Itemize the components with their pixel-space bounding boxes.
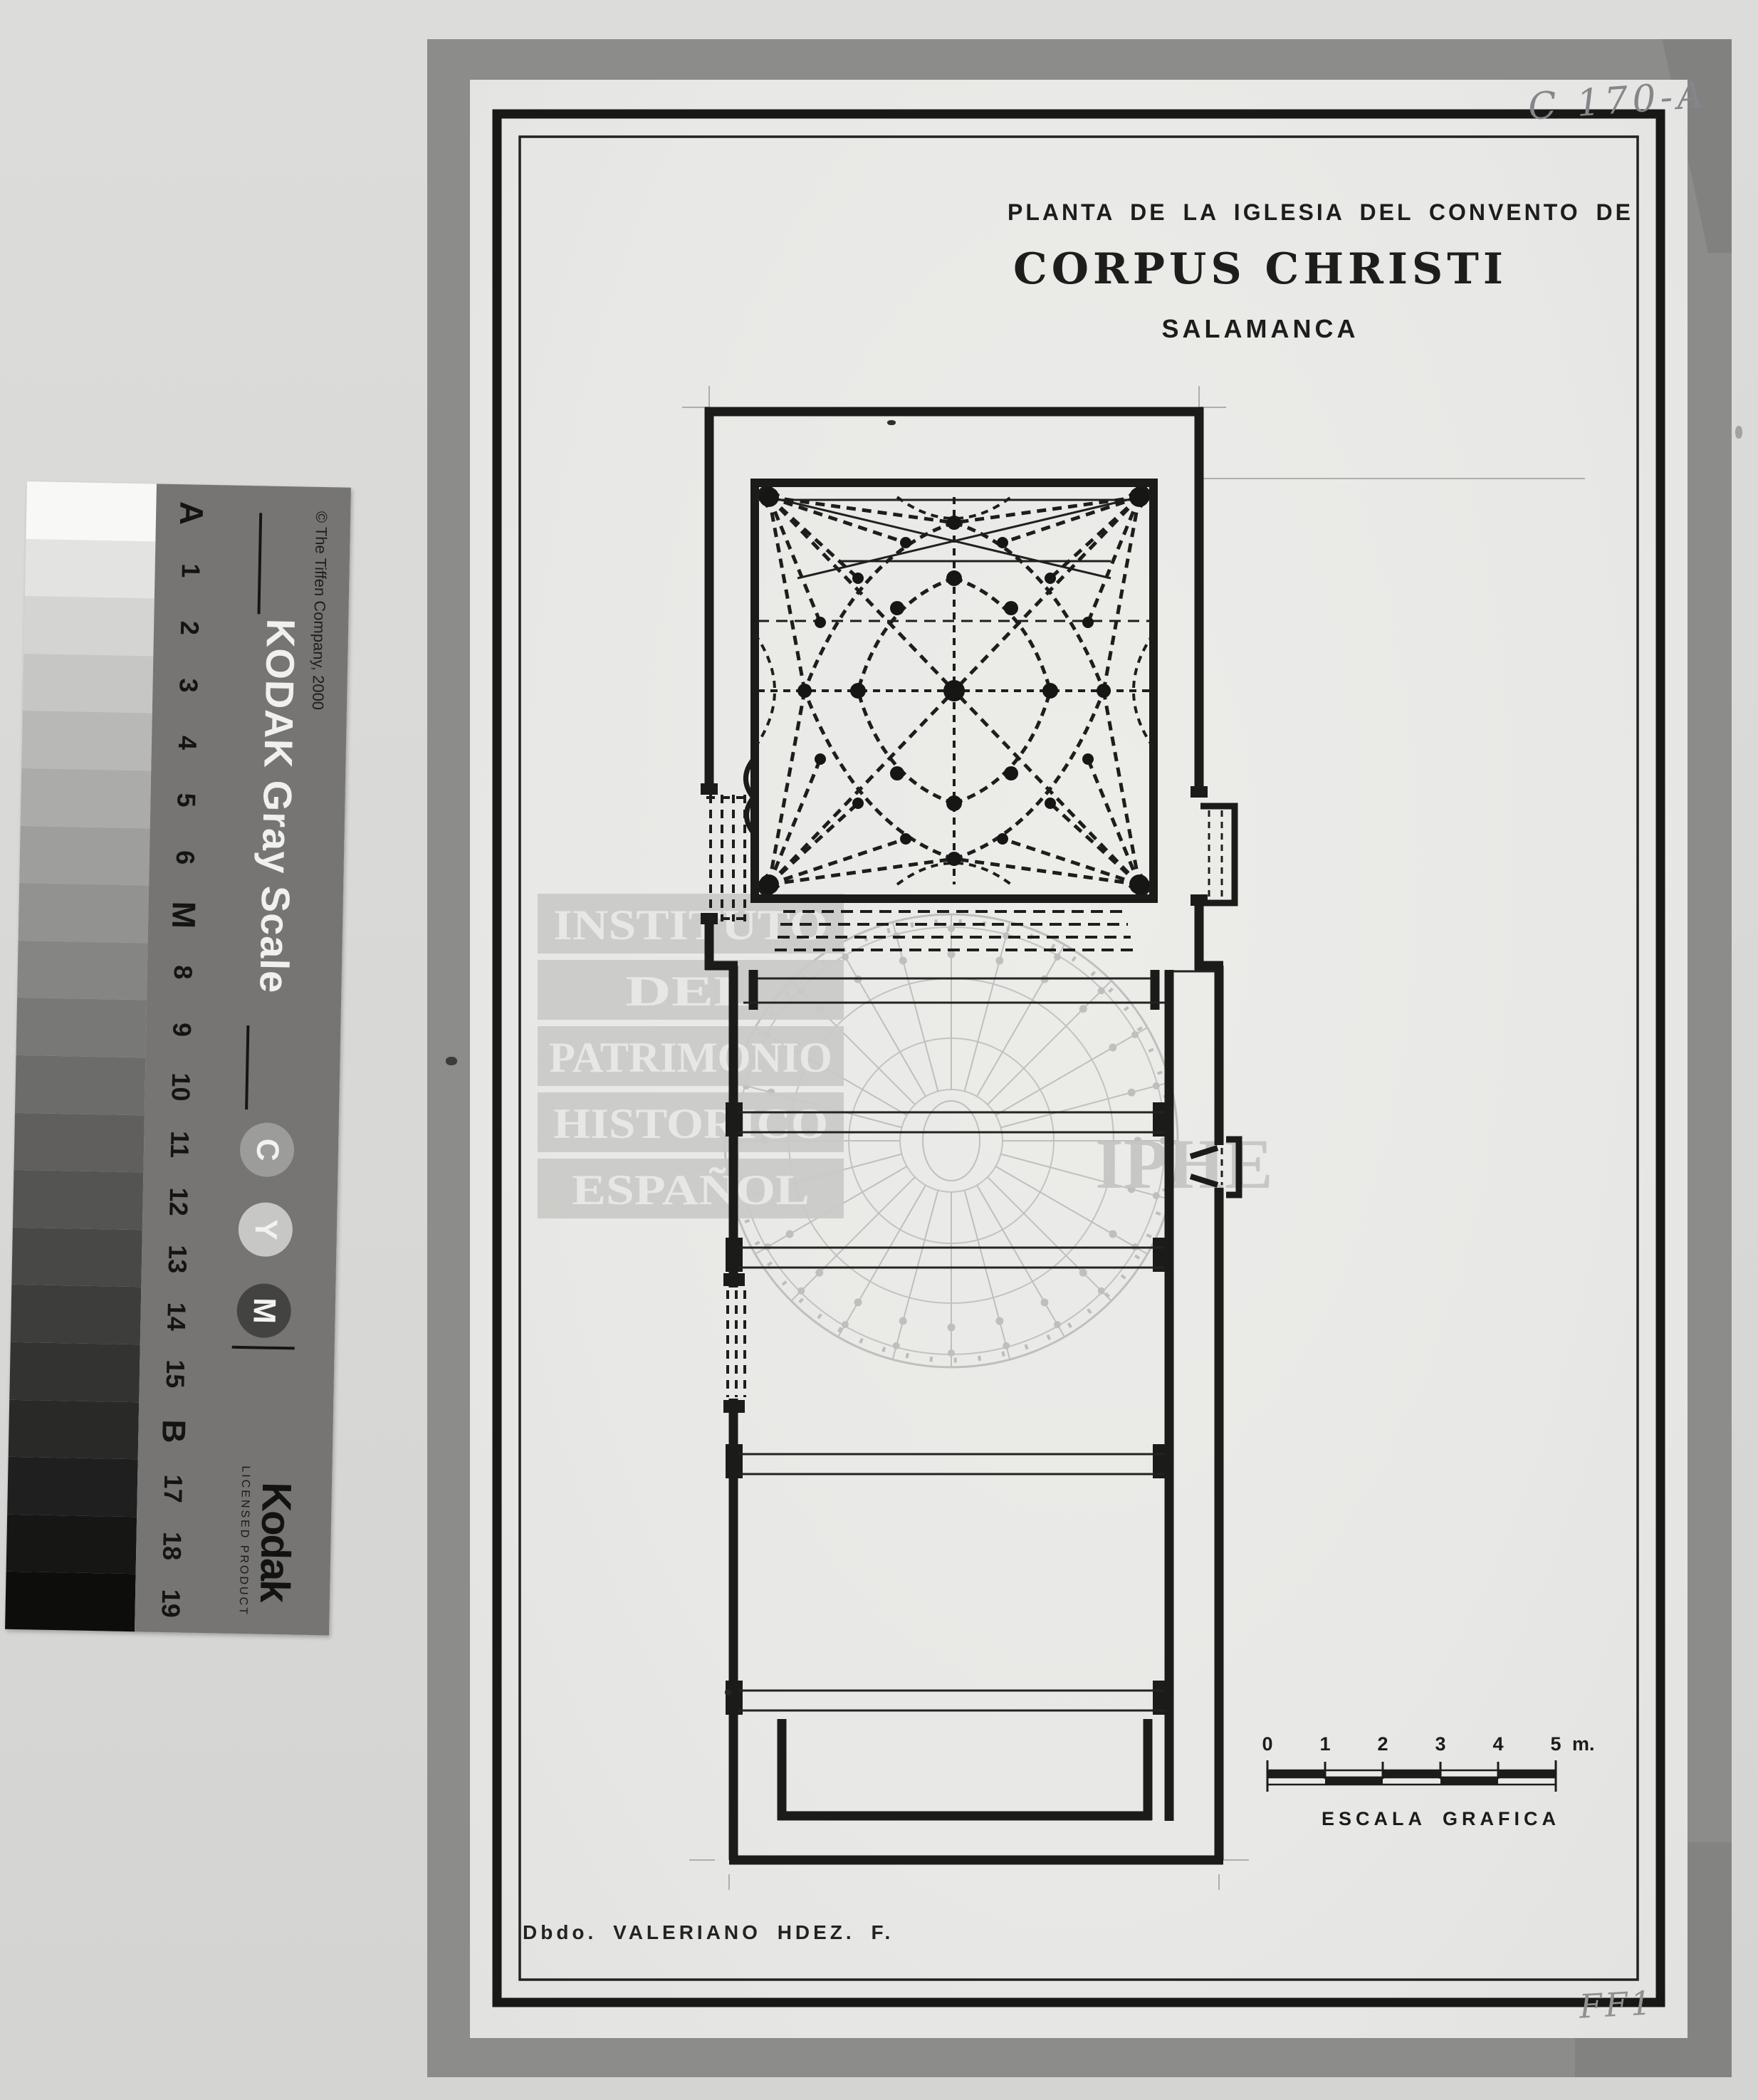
gray-patch [17, 941, 148, 1001]
step-label: 17 [139, 1459, 200, 1517]
scale-tick-label: 2 [1377, 1733, 1388, 1755]
gray-patch [7, 1457, 138, 1517]
gray-patch [13, 1170, 144, 1230]
step-label: M [150, 886, 211, 944]
step-label: 12 [145, 1172, 206, 1231]
step-label: 19 [137, 1574, 198, 1633]
kodak-title: KODAK Gray Scale [251, 618, 304, 994]
artifact-speck [1735, 426, 1742, 439]
step-label: 13 [143, 1230, 204, 1288]
watermark-acronym: IPHE [1095, 1124, 1273, 1203]
graphic-scale: 0 1 2 3 4 5 m. [1266, 1733, 1608, 1831]
gray-patch [19, 825, 150, 885]
gray-patch [25, 539, 156, 599]
magenta-circle: M [236, 1283, 291, 1338]
kodak-licensed: LICENSED PRODUCT [236, 1463, 251, 1619]
draughtsman-signature: Dbdo. VALERIANO HDEZ. F. [523, 1921, 894, 1944]
circle-letter: C [249, 1138, 286, 1161]
circle-letter: Y [248, 1218, 284, 1240]
scale-tick-label: 5 [1550, 1733, 1561, 1755]
scale-caption: ESCALA GRAFICA [1266, 1808, 1608, 1831]
gray-patch [21, 711, 152, 770]
scale-caption-word1: ESCALA [1322, 1808, 1426, 1830]
kodak-copyright: © The Tiffen Company, 2000 [308, 511, 330, 711]
scale-tick-label: 4 [1492, 1733, 1503, 1755]
scale-numbers: 0 1 2 3 4 5 m. [1266, 1733, 1608, 1759]
gray-patch [9, 1342, 140, 1402]
gray-patch [21, 768, 152, 828]
step-label: 9 [147, 1001, 209, 1059]
gray-patch [23, 596, 155, 656]
drawing-title-line2: CORPUS CHRISTI [1008, 244, 1513, 294]
gray-scale-patches [5, 481, 157, 1631]
gray-patch [23, 654, 154, 714]
watermark-line: PATRIMONIO [549, 1034, 832, 1081]
gray-patch [26, 481, 157, 541]
gray-patch [14, 1112, 145, 1172]
drawing-title-line3: SALAMANCA [1008, 314, 1513, 344]
step-label: 6 [151, 828, 212, 887]
rule-line [257, 513, 262, 614]
circle-letter: M [246, 1297, 282, 1325]
gray-patch [19, 883, 150, 943]
step-label: 14 [142, 1287, 204, 1346]
gray-patch [9, 1399, 140, 1459]
step-label: 15 [141, 1344, 202, 1403]
watermark-line: HISTORICO [553, 1100, 828, 1147]
step-label: 4 [153, 714, 214, 772]
document-sheet: INSTITUTO DEL PATRIMONIO HISTORICO ESPAÑ… [470, 80, 1688, 2038]
step-label: 8 [149, 943, 210, 1001]
scale-tick-label: 3 [1435, 1733, 1445, 1755]
artifact-speck [725, 1689, 731, 1696]
kodak-gray-scale-card: © The Tiffen Company, 2000 KODAK Gray Sc… [5, 481, 351, 1635]
scale-unit: m. [1572, 1733, 1595, 1755]
kodak-logo-block: Kodak LICENSED PRODUCT [236, 1463, 300, 1621]
step-label: 10 [147, 1057, 208, 1116]
cyan-circle: C [239, 1122, 294, 1177]
step-label: 5 [152, 770, 214, 829]
gray-patch [11, 1285, 142, 1344]
artifact-speck [887, 420, 896, 425]
gray-patch [5, 1572, 136, 1631]
rule-line [232, 1346, 295, 1350]
gray-patch [6, 1514, 137, 1574]
scale-caption-word2: GRAFICA [1443, 1808, 1560, 1830]
step-label: 3 [155, 656, 216, 714]
step-label: A [157, 484, 219, 543]
step-label: 1 [157, 541, 218, 600]
kodak-label-panel: © The Tiffen Company, 2000 KODAK Gray Sc… [135, 484, 351, 1635]
photo-background: INSTITUTO DEL PATRIMONIO HISTORICO ESPAÑ… [0, 0, 1758, 2100]
yellow-circle: Y [238, 1202, 293, 1257]
step-label: 11 [145, 1115, 206, 1174]
gray-patch [15, 1055, 146, 1115]
scale-tick-label: 1 [1319, 1733, 1330, 1755]
step-label: 18 [138, 1517, 199, 1575]
artifact-speck [446, 1057, 457, 1065]
bottom-right-annotation: FF1 [1579, 1983, 1655, 2025]
mount-edge-bottom-right [1682, 1842, 1732, 2077]
scale-bar-graphic [1266, 1759, 1601, 1796]
title-block: PLANTA DE LA IGLESIA DEL CONVENTO DE COR… [1008, 199, 1513, 344]
gray-patch [11, 1228, 142, 1287]
drawing-title-line1: PLANTA DE LA IGLESIA DEL CONVENTO DE [1008, 199, 1513, 226]
step-label: 2 [155, 599, 216, 657]
mount-frame: INSTITUTO DEL PATRIMONIO HISTORICO ESPAÑ… [427, 39, 1732, 2077]
chapel-star-vault [755, 487, 1153, 894]
iphe-watermark: INSTITUTO DEL PATRIMONIO HISTORICO ESPAÑ… [538, 894, 1273, 1218]
gray-patch [16, 998, 147, 1057]
watermark-line: ESPAÑOL [572, 1166, 810, 1213]
rule-line [245, 1025, 249, 1109]
step-label: B [140, 1402, 202, 1461]
kodak-logo: Kodak [250, 1463, 300, 1620]
scale-tick-label: 0 [1262, 1733, 1272, 1755]
